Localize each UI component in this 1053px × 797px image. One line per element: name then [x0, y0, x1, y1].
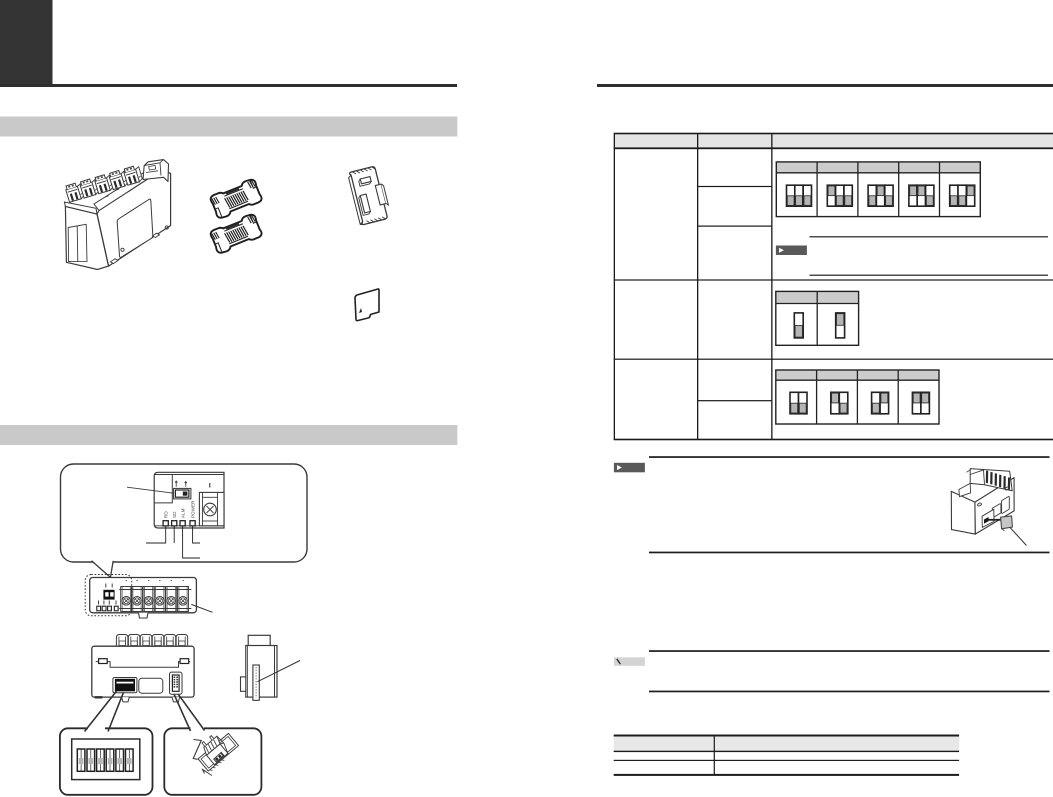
svg-text:POWER: POWER	[190, 500, 195, 518]
svg-text:RD: RD	[164, 511, 169, 518]
svg-text:ALM: ALM	[180, 508, 185, 518]
svg-text:SD: SD	[172, 511, 177, 518]
